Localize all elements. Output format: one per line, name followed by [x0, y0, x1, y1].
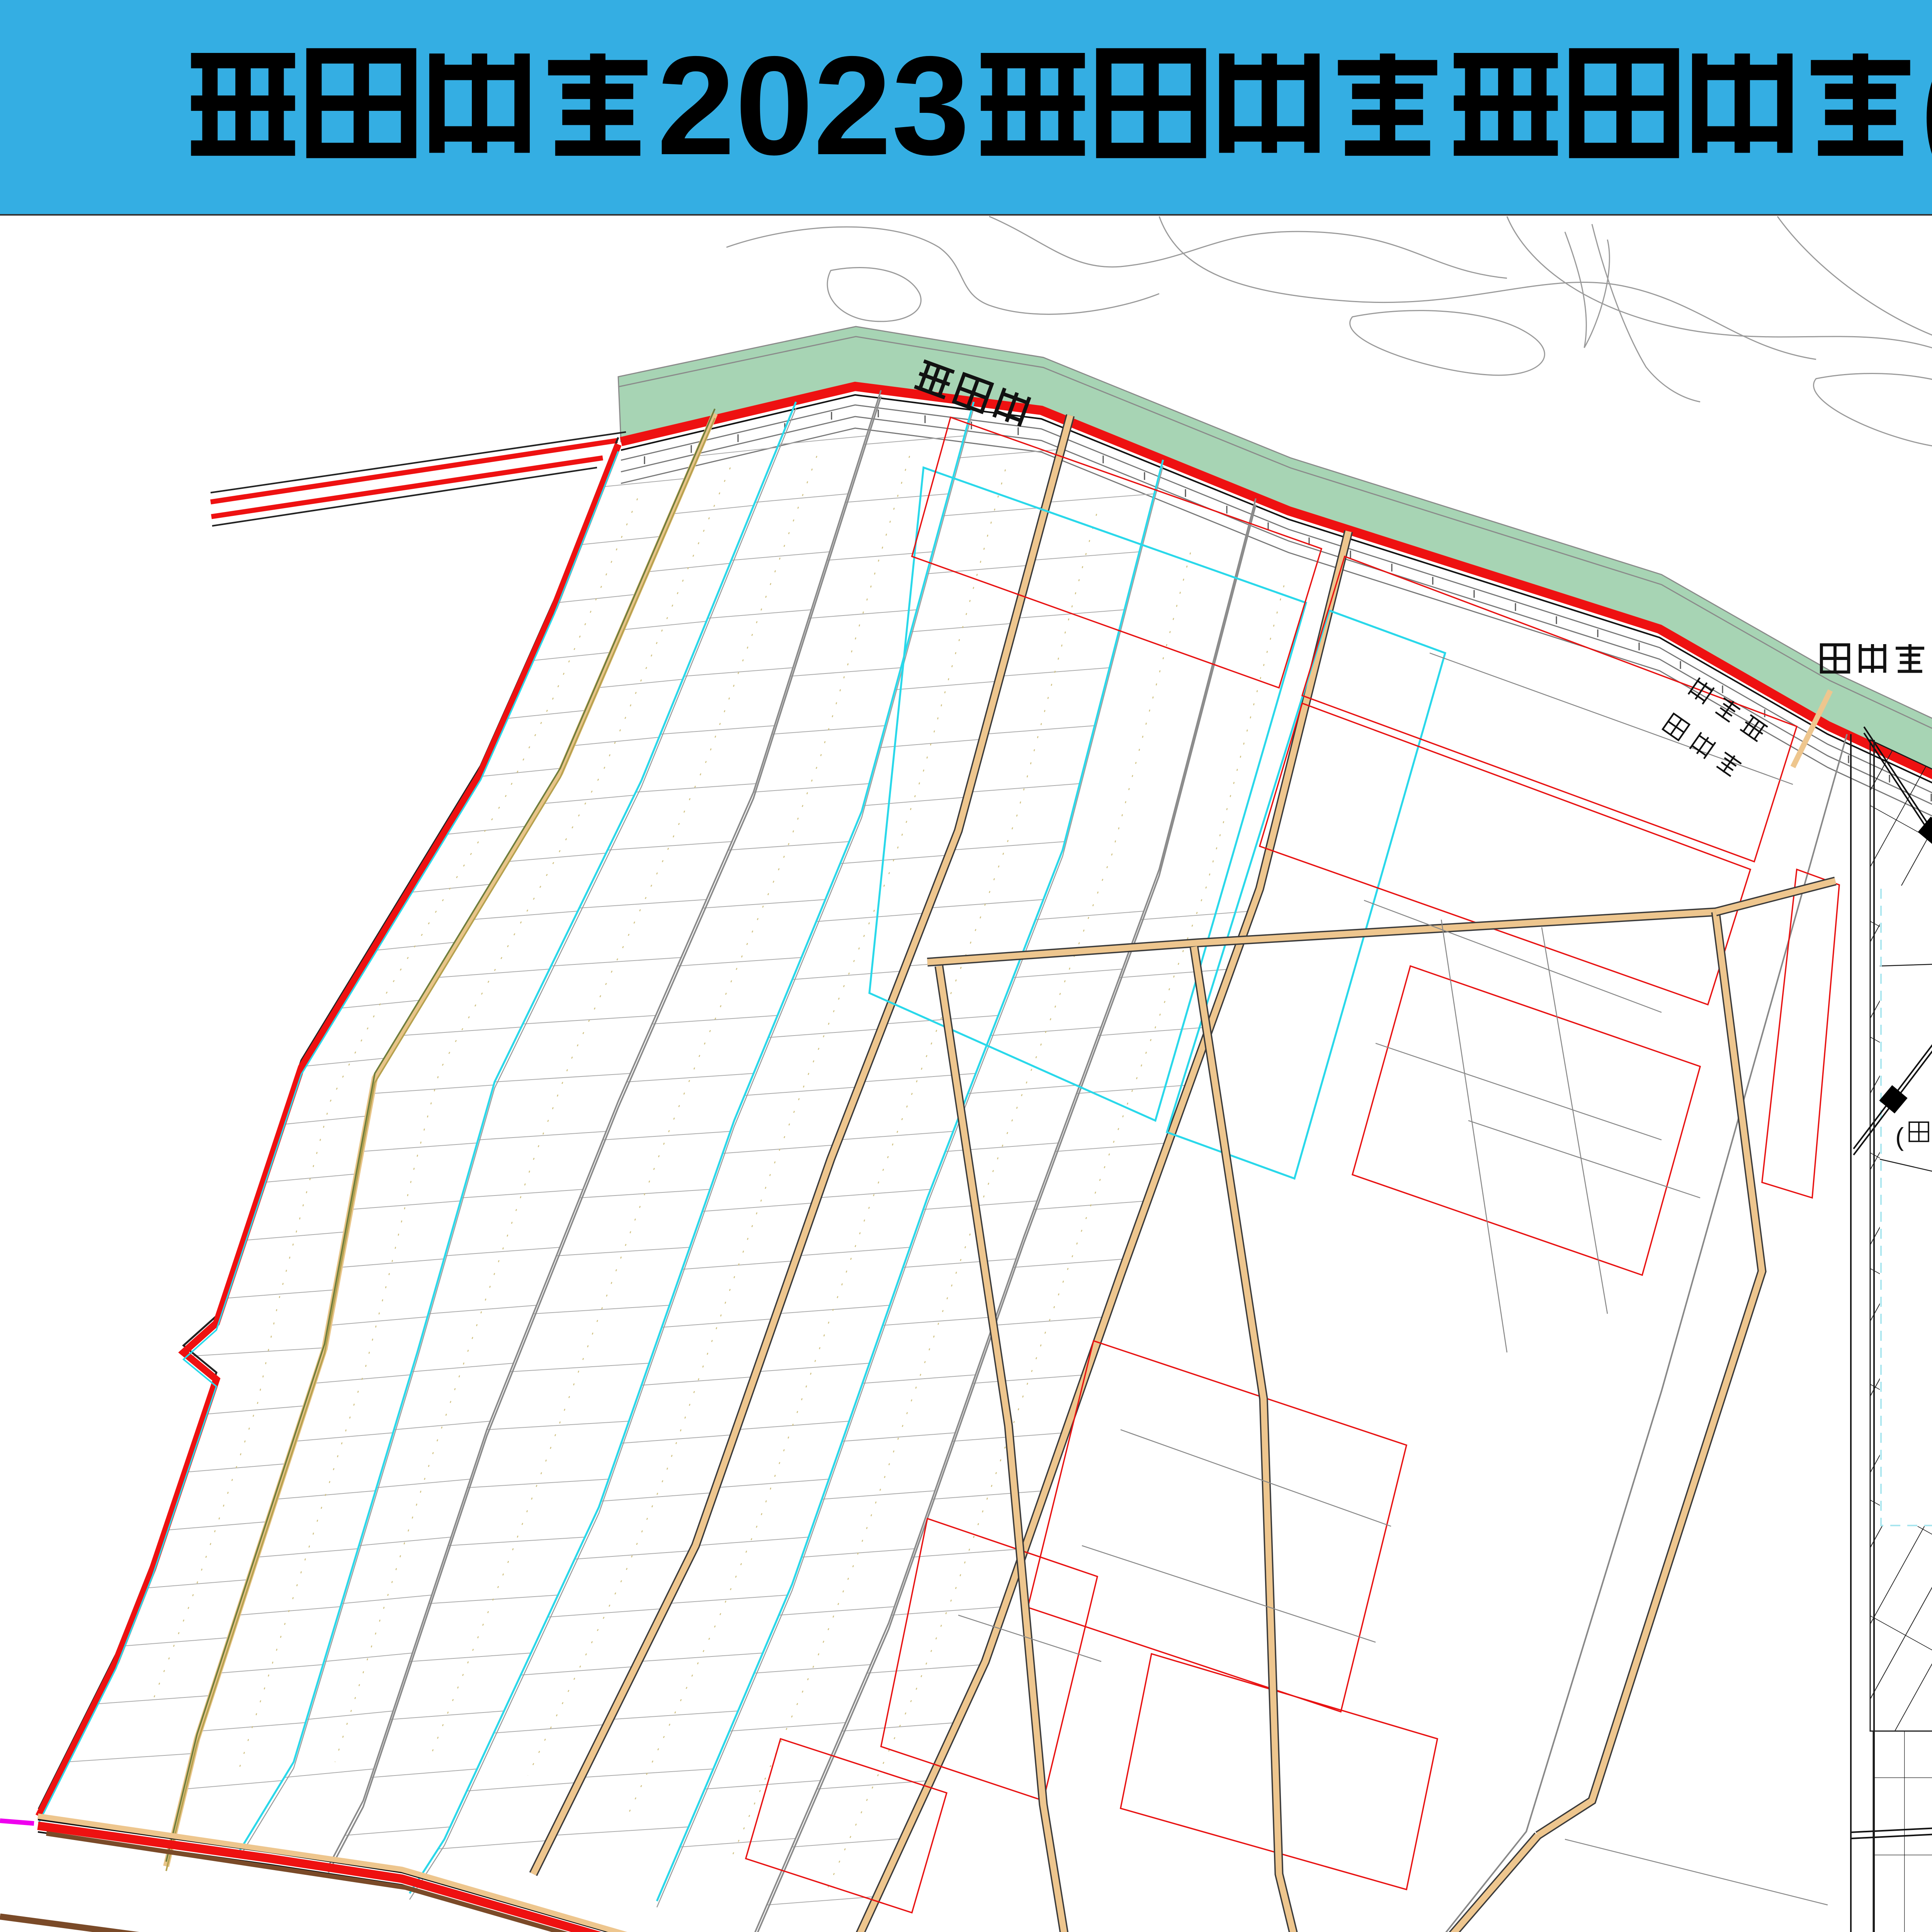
svg-text:(: (	[1920, 27, 1932, 185]
svg-text:2023: 2023	[657, 27, 970, 184]
svg-text:(: (	[1895, 1122, 1904, 1151]
